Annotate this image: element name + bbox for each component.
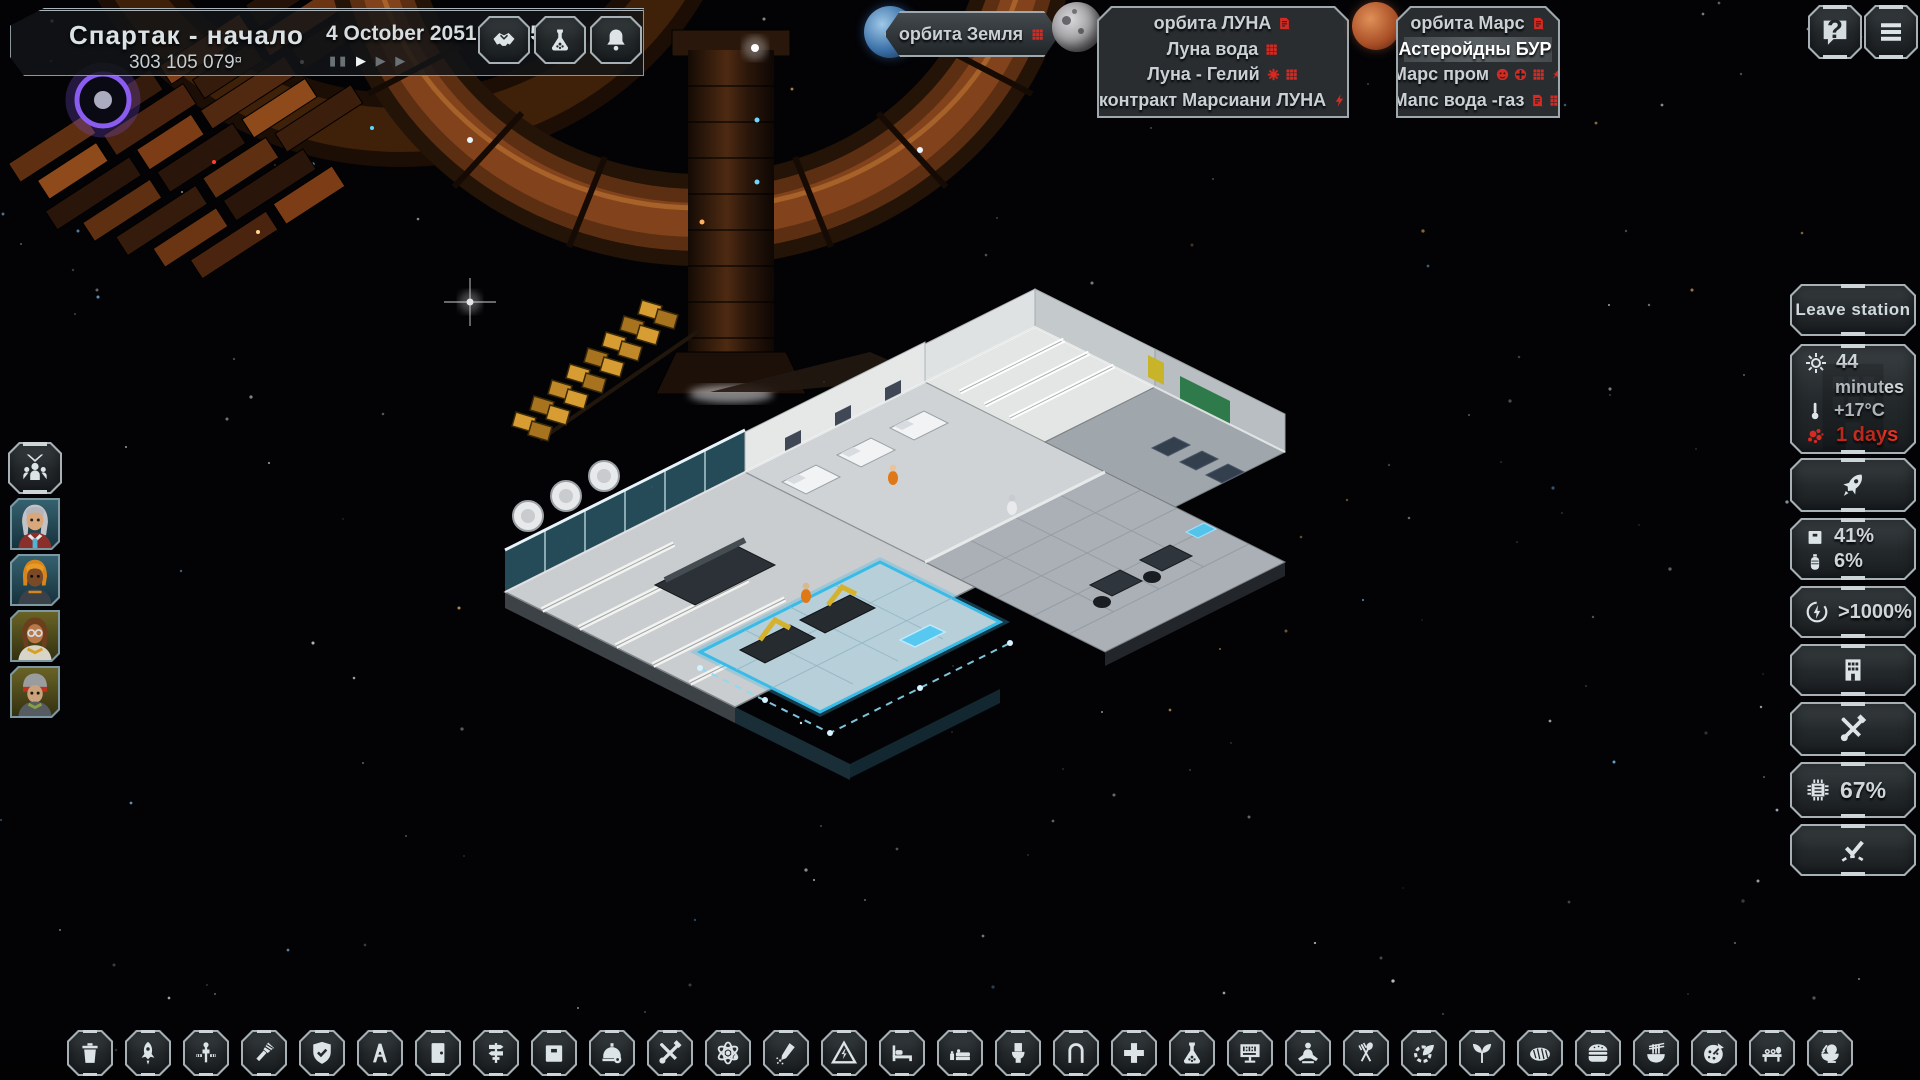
mission-label: контракт Марсиани ЛУНА <box>1099 90 1326 111</box>
plusc-icon <box>1513 67 1528 82</box>
crew-avatar[interactable] <box>10 554 60 606</box>
crew-avatar[interactable] <box>10 498 60 550</box>
bed-icon <box>888 1039 916 1067</box>
station-build-button[interactable] <box>1790 644 1916 696</box>
mission-status-icons <box>1277 16 1292 31</box>
help-button[interactable]: ? <box>1808 5 1862 59</box>
sushi-icon <box>1758 1039 1786 1067</box>
research-percent: 67% <box>1840 777 1886 804</box>
door-icon <box>424 1039 452 1067</box>
mars-missions-panel: орбита Марс Астеройдны БУР Марс пром Мап… <box>1396 6 1560 118</box>
toolbar-button[interactable] <box>531 1030 577 1076</box>
toolbar-button[interactable] <box>1227 1030 1273 1076</box>
mission-label: Мапс вода -газ <box>1393 90 1525 111</box>
toolbar-button[interactable] <box>1517 1030 1563 1076</box>
doc-icon <box>1277 16 1292 31</box>
avatar2-portrait <box>12 556 58 604</box>
mars-mission-row[interactable]: Марс пром <box>1404 62 1552 87</box>
gas-tank-icon <box>1804 551 1826 573</box>
mission-label: орбита ЛУНА <box>1154 13 1272 34</box>
speed-controls[interactable]: ▮▮ ▶ ▶ ▶ <box>329 53 408 69</box>
ramp-icon <box>366 1039 394 1067</box>
toolbar-button[interactable] <box>1691 1030 1737 1076</box>
smiley-icon <box>1495 67 1510 82</box>
gearleaf-icon <box>1410 1039 1438 1067</box>
terminal-icon <box>1236 1039 1264 1067</box>
welder-icon <box>772 1039 800 1067</box>
gear-icon <box>1266 67 1281 82</box>
luna-mission-row[interactable]: Луна - Гелий <box>1105 62 1341 87</box>
luna-mission-row[interactable]: орбита ЛУНА <box>1105 11 1341 36</box>
toolbar-button[interactable] <box>1053 1030 1099 1076</box>
shower-icon <box>1062 1039 1090 1067</box>
fastest-button[interactable]: ▶ <box>395 53 408 68</box>
game-viewport[interactable]: Спартак - начало 303 105 079¤ 4 October … <box>0 0 1920 1080</box>
toolbar-button[interactable] <box>1111 1030 1157 1076</box>
toolbar-button[interactable] <box>183 1030 229 1076</box>
storage-percent: 41% <box>1834 525 1874 548</box>
grid-icon <box>1264 42 1279 57</box>
crew-group-icon <box>17 450 53 486</box>
mission-label: Марс пром <box>1392 64 1489 85</box>
bolt-icon <box>1332 93 1347 108</box>
toolbar-button[interactable] <box>473 1030 519 1076</box>
mission-label: Астеройдны БУР <box>1398 39 1551 60</box>
toolbar-button[interactable] <box>1749 1030 1795 1076</box>
cutlery-icon <box>1352 1039 1380 1067</box>
burger-icon <box>1584 1039 1612 1067</box>
luna-mission-row[interactable]: Луна вода <box>1105 37 1341 62</box>
toolbar-button[interactable] <box>995 1030 1041 1076</box>
trash-icon <box>76 1039 104 1067</box>
toolbar-button[interactable] <box>1401 1030 1447 1076</box>
crossed-tools-icon <box>1837 713 1869 745</box>
mission-label: орбита Марс <box>1410 13 1524 34</box>
currency-symbol: ¤ <box>235 52 242 67</box>
satellite-icon <box>192 1039 220 1067</box>
bell-icon <box>602 26 630 54</box>
help-label: ? <box>1827 14 1843 45</box>
rocket-button[interactable] <box>1790 458 1916 512</box>
landing-confirm-button[interactable] <box>1790 824 1916 876</box>
toolbar-button[interactable] <box>1169 1030 1215 1076</box>
cargo-panel[interactable]: 41% 6% <box>1790 518 1916 580</box>
storage-crate-icon <box>1804 526 1826 548</box>
repair-tools-button[interactable] <box>1790 702 1916 756</box>
toolbar-button[interactable] <box>1459 1030 1505 1076</box>
handshake-icon <box>490 26 518 54</box>
ricebowl-icon <box>1816 1039 1844 1067</box>
checkmark-landing-icon <box>1837 834 1869 866</box>
toolbar-button[interactable] <box>1633 1030 1679 1076</box>
earth-orbit-button[interactable]: орбита Земля <box>884 11 1060 57</box>
toolbar-button[interactable] <box>415 1030 461 1076</box>
bedroom-icon <box>946 1039 974 1067</box>
noodles-icon <box>1642 1039 1670 1067</box>
toilet-icon <box>1004 1039 1032 1067</box>
header-button[interactable] <box>478 16 530 64</box>
avatar3-portrait <box>12 612 58 660</box>
fast-forward-button[interactable]: ▶ <box>376 53 389 68</box>
crew-group-button[interactable] <box>8 442 62 494</box>
grid-icon <box>1531 67 1546 82</box>
mars-mission-row[interactable]: Мапс вода -газ <box>1404 88 1552 113</box>
tools-icon <box>656 1039 684 1067</box>
helmet-icon <box>598 1039 626 1067</box>
station-status-panel[interactable]: 44 minutes +17°C 1 days <box>1790 344 1916 454</box>
pizza-icon <box>1700 1039 1728 1067</box>
drill-icon <box>250 1039 278 1067</box>
crate-icon <box>540 1039 568 1067</box>
grid-icon <box>1284 67 1299 82</box>
toolbar-button[interactable] <box>763 1030 809 1076</box>
earth-orbit-label: орбита Земля <box>899 24 1023 45</box>
grid-icon <box>1030 27 1045 42</box>
rocket-icon <box>134 1039 162 1067</box>
rocket-icon <box>1829 461 1877 509</box>
avatar1-portrait <box>12 500 58 548</box>
plant-icon <box>1468 1039 1496 1067</box>
avatar4-portrait <box>12 668 58 716</box>
toolbar-button[interactable] <box>1807 1030 1853 1076</box>
mission-status-icons <box>1495 67 1564 82</box>
bread-icon <box>1526 1039 1554 1067</box>
power-icon <box>1804 599 1830 625</box>
signpost-icon <box>482 1039 510 1067</box>
mission-status-icons <box>1264 42 1279 57</box>
toolbar-button[interactable] <box>357 1030 403 1076</box>
pause-button[interactable]: ▮▮ <box>329 53 349 68</box>
station-scene[interactable] <box>0 0 1920 1080</box>
crew-avatar[interactable] <box>10 666 60 718</box>
mission-status-icons <box>1530 93 1563 108</box>
toolbar-button[interactable] <box>1575 1030 1621 1076</box>
luna-missions-panel: орбита ЛУНА Луна вода Луна - Гелий контр… <box>1097 6 1349 118</box>
earth-status-icons <box>1030 27 1045 42</box>
menu-button[interactable] <box>1864 5 1918 59</box>
play-button[interactable]: ▶ <box>356 53 369 68</box>
toolbar-button[interactable] <box>1285 1030 1331 1076</box>
toolbar-button[interactable] <box>879 1030 925 1076</box>
doc-icon <box>1531 16 1546 31</box>
mission-status-icons <box>1266 67 1299 82</box>
toolbar-button[interactable] <box>1343 1030 1389 1076</box>
mars-mission-row[interactable]: орбита Марс <box>1404 11 1552 36</box>
doc-icon <box>1530 93 1545 108</box>
toolbar-button[interactable] <box>299 1030 345 1076</box>
power-percent: >1000% <box>1838 601 1912 624</box>
toolbar-button[interactable] <box>241 1030 287 1076</box>
money-readout: 303 105 079¤ <box>129 52 242 74</box>
toolbar-button[interactable] <box>125 1030 171 1076</box>
chip-icon <box>1804 776 1832 804</box>
hazard-icon <box>830 1039 858 1067</box>
leave-station-button[interactable]: Leave station <box>1790 284 1916 336</box>
luna-mission-row[interactable]: контракт Марсиани ЛУНА <box>1105 88 1341 113</box>
mission-label: Луна - Гелий <box>1147 64 1259 85</box>
power-panel[interactable]: >1000% <box>1790 586 1916 638</box>
meditation-icon <box>1294 1039 1322 1067</box>
mars-globe[interactable] <box>1352 2 1400 50</box>
toolbar-button[interactable] <box>647 1030 693 1076</box>
crew-avatar[interactable] <box>10 610 60 662</box>
hamburger-menu-icon <box>1876 17 1906 47</box>
mission-label: Луна вода <box>1167 39 1259 60</box>
toolbar-button[interactable] <box>937 1030 983 1076</box>
mission-status-icons <box>1332 93 1347 108</box>
header-button[interactable] <box>590 16 642 64</box>
atom-icon <box>714 1039 742 1067</box>
toolbar-button[interactable] <box>67 1030 113 1076</box>
research-progress-panel[interactable]: 67% <box>1790 762 1916 818</box>
toolbar-button[interactable] <box>705 1030 751 1076</box>
building-icon <box>1838 655 1868 685</box>
shield-icon <box>308 1039 336 1067</box>
tank-percent: 6% <box>1834 550 1863 573</box>
header-button[interactable] <box>534 16 586 64</box>
mars-mission-row[interactable]: Астеройдны БУР <box>1404 37 1552 62</box>
toolbar-button[interactable] <box>821 1030 867 1076</box>
toolbar-button[interactable] <box>589 1030 635 1076</box>
flask-icon <box>1178 1039 1206 1067</box>
medical-icon <box>1120 1039 1148 1067</box>
flask-icon <box>546 26 574 54</box>
mission-status-icons <box>1531 16 1546 31</box>
moon-globe[interactable] <box>1052 2 1102 52</box>
